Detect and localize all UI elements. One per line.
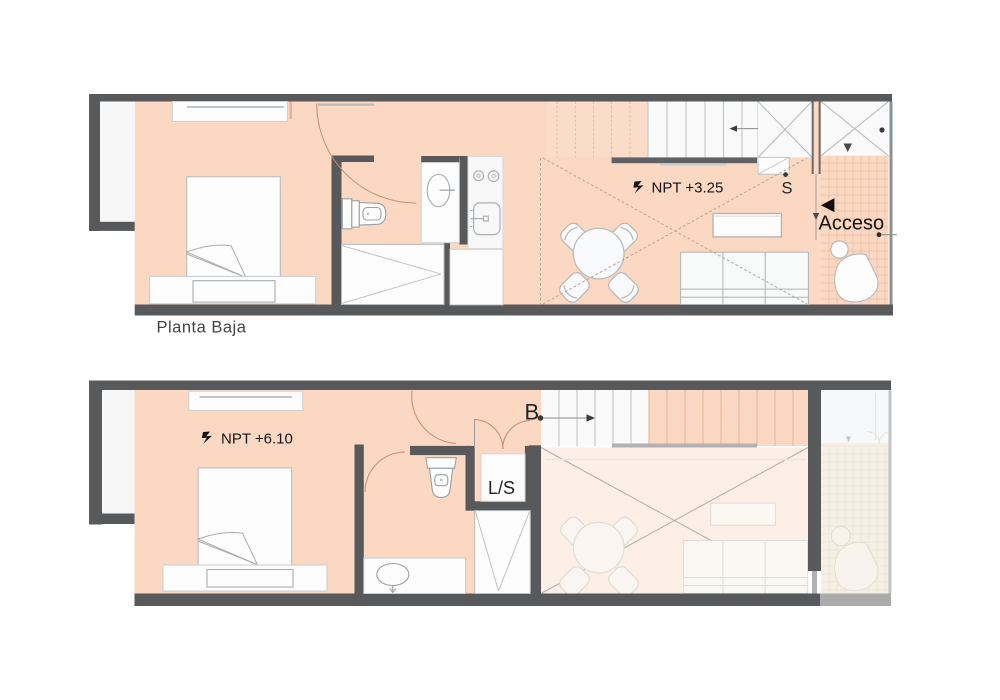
- svg-text:NPT +6.10: NPT +6.10: [221, 431, 293, 448]
- svg-text:S: S: [782, 180, 793, 198]
- svg-text:Planta Baja: Planta Baja: [157, 319, 247, 337]
- svg-text:L/S: L/S: [488, 478, 515, 498]
- svg-text:Acceso: Acceso: [819, 213, 885, 235]
- svg-text:B: B: [525, 400, 540, 425]
- svg-text:NPT +3.25: NPT +3.25: [652, 180, 724, 197]
